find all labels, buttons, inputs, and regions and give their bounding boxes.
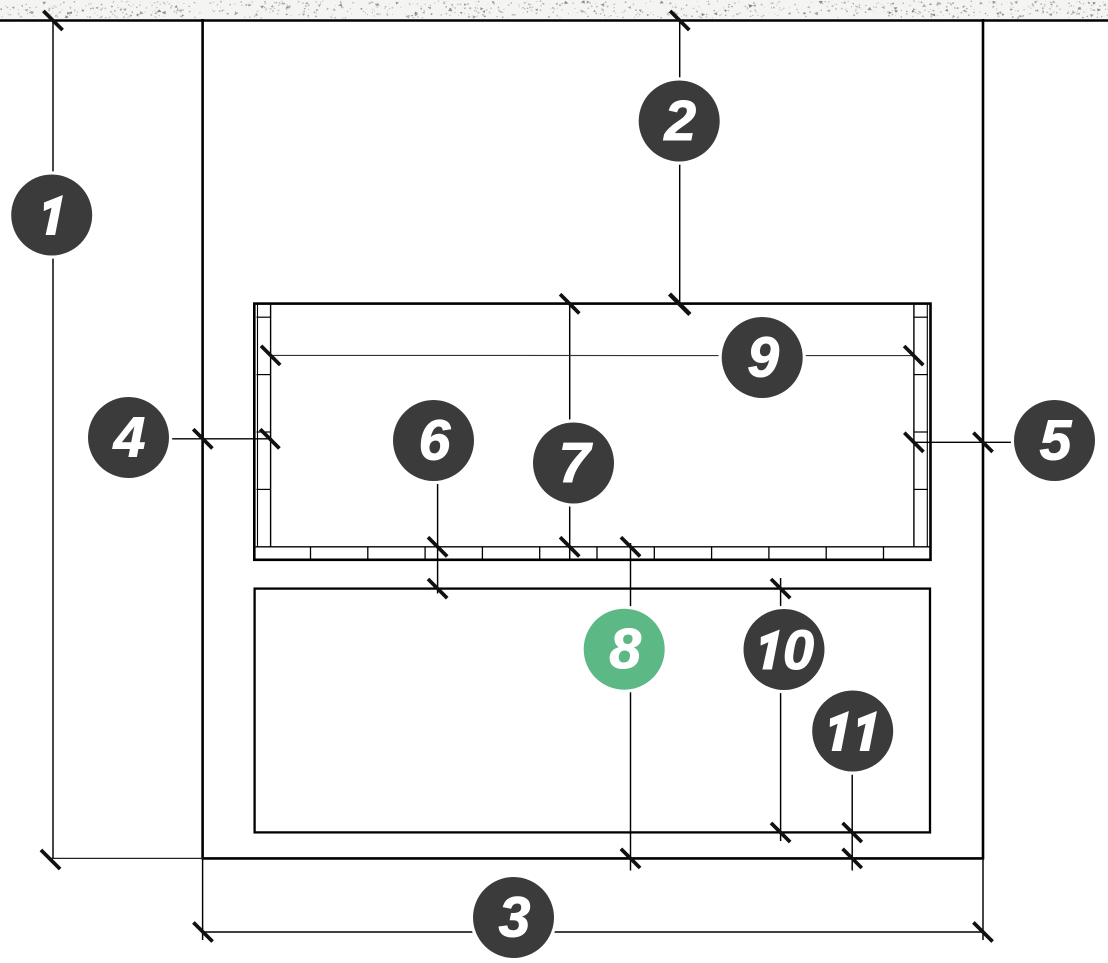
svg-text:7: 7 [559,431,593,495]
svg-text:2: 2 [663,89,696,153]
svg-text:8: 8 [609,617,641,681]
svg-text:6: 6 [419,409,451,473]
svg-text:4: 4 [113,406,146,470]
svg-text:5: 5 [1040,409,1073,473]
svg-text:9: 9 [747,326,779,390]
svg-text:3: 3 [499,886,531,950]
svg-text:0: 0 [783,618,814,681]
